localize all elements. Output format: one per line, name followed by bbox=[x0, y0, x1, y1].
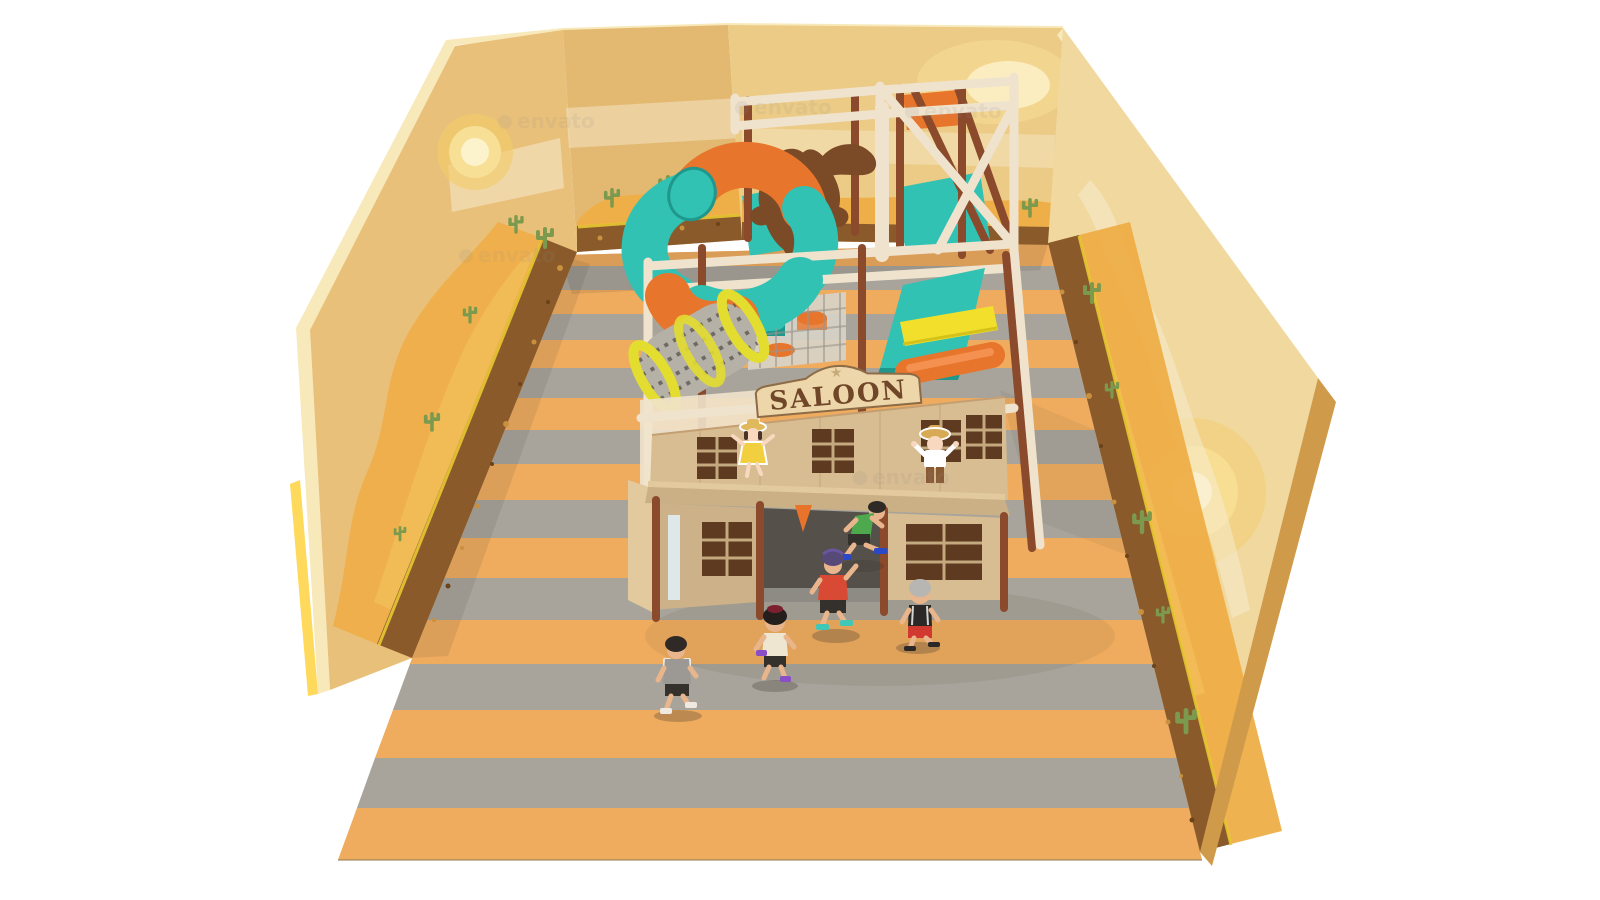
kid-shadow bbox=[812, 629, 860, 643]
saloon-window bbox=[906, 524, 982, 580]
kid-sandal bbox=[928, 642, 940, 647]
kid-torso bbox=[663, 659, 691, 684]
saloon-window bbox=[812, 429, 854, 473]
kid-hair bbox=[665, 636, 687, 652]
kid-sandal bbox=[904, 646, 916, 651]
kid-shorts bbox=[908, 626, 932, 638]
watermark-logo-icon bbox=[498, 115, 512, 129]
kid-torso bbox=[818, 575, 848, 600]
watermark-text: envato bbox=[924, 99, 1002, 123]
floor-stripe bbox=[338, 808, 1202, 860]
scene-canvas: ★ SALOON bbox=[0, 0, 1600, 900]
watermark-text: envato bbox=[478, 243, 556, 267]
saloon-side-door bbox=[668, 515, 680, 600]
kid-shoe bbox=[756, 650, 767, 656]
kid-shadow bbox=[840, 560, 884, 572]
kid-shoe bbox=[840, 620, 853, 626]
kid-shorts bbox=[820, 600, 846, 613]
watermark-logo-icon bbox=[853, 471, 867, 485]
kid-shadow bbox=[752, 680, 798, 692]
kid-shoe bbox=[816, 624, 829, 630]
kid-shorts bbox=[665, 684, 689, 696]
floor-stripe bbox=[375, 710, 1177, 758]
floor-stripe bbox=[357, 758, 1189, 808]
kid-hair bbox=[909, 579, 931, 597]
watermark-logo-icon bbox=[905, 105, 919, 119]
playground-render: ★ SALOON bbox=[0, 0, 1600, 900]
watermark-text: envato bbox=[517, 109, 595, 133]
saloon-window bbox=[697, 437, 737, 479]
watermark-logo-icon bbox=[735, 101, 749, 115]
shirt-trim bbox=[927, 606, 928, 625]
saloon-window bbox=[966, 415, 1002, 459]
mural-sun bbox=[461, 138, 489, 166]
watermark-text: envato bbox=[754, 95, 832, 119]
watermark-text: envato bbox=[872, 465, 950, 489]
sign-star-icon: ★ bbox=[829, 365, 843, 382]
kid-shoe bbox=[660, 708, 672, 714]
saloon-window bbox=[702, 522, 752, 576]
kid-hair bbox=[868, 501, 886, 513]
shirt-trim bbox=[912, 606, 913, 625]
kid-shoe bbox=[685, 702, 697, 708]
kid-shoe bbox=[780, 676, 791, 682]
kid-cap bbox=[767, 605, 783, 613]
kid-shoe bbox=[874, 548, 887, 554]
watermark-logo-icon bbox=[459, 249, 473, 263]
